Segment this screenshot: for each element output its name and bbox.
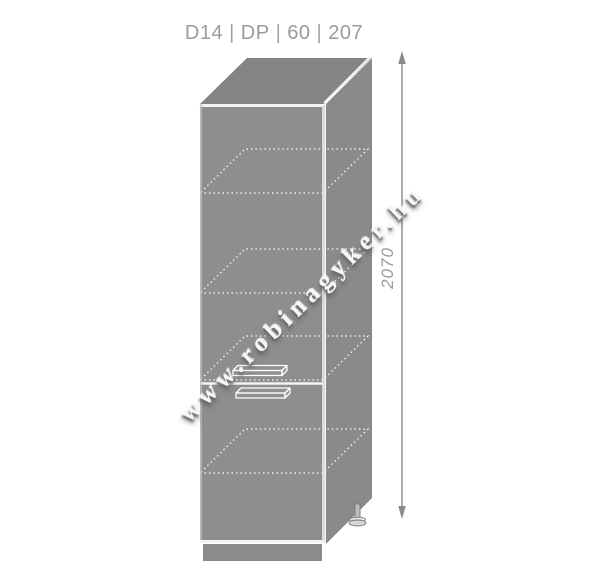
cabinet-plinth [203, 544, 322, 561]
product-code-width: 60 [287, 22, 310, 44]
upper-door-handle-icon [233, 366, 287, 376]
lower-door-handle-icon [236, 388, 290, 398]
cabinet-front-face [200, 104, 324, 542]
arrow-up-icon [398, 51, 406, 64]
separator: | [270, 22, 288, 44]
height-dimension-line [398, 51, 406, 519]
tall-cabinet-drawing [0, 0, 600, 586]
furniture-diagram-page: D14|DP|60|207 [0, 0, 600, 586]
height-dimension-value: 2070 [378, 247, 398, 289]
product-code-title: D14|DP|60|207 [0, 22, 548, 45]
product-code-model: D14 [185, 22, 223, 44]
separator: | [311, 22, 329, 44]
product-code-height: 207 [328, 22, 363, 44]
cabinet-side-face [326, 58, 372, 544]
arrow-down-icon [398, 506, 406, 519]
product-code-series: DP [241, 22, 270, 44]
separator: | [223, 22, 241, 44]
